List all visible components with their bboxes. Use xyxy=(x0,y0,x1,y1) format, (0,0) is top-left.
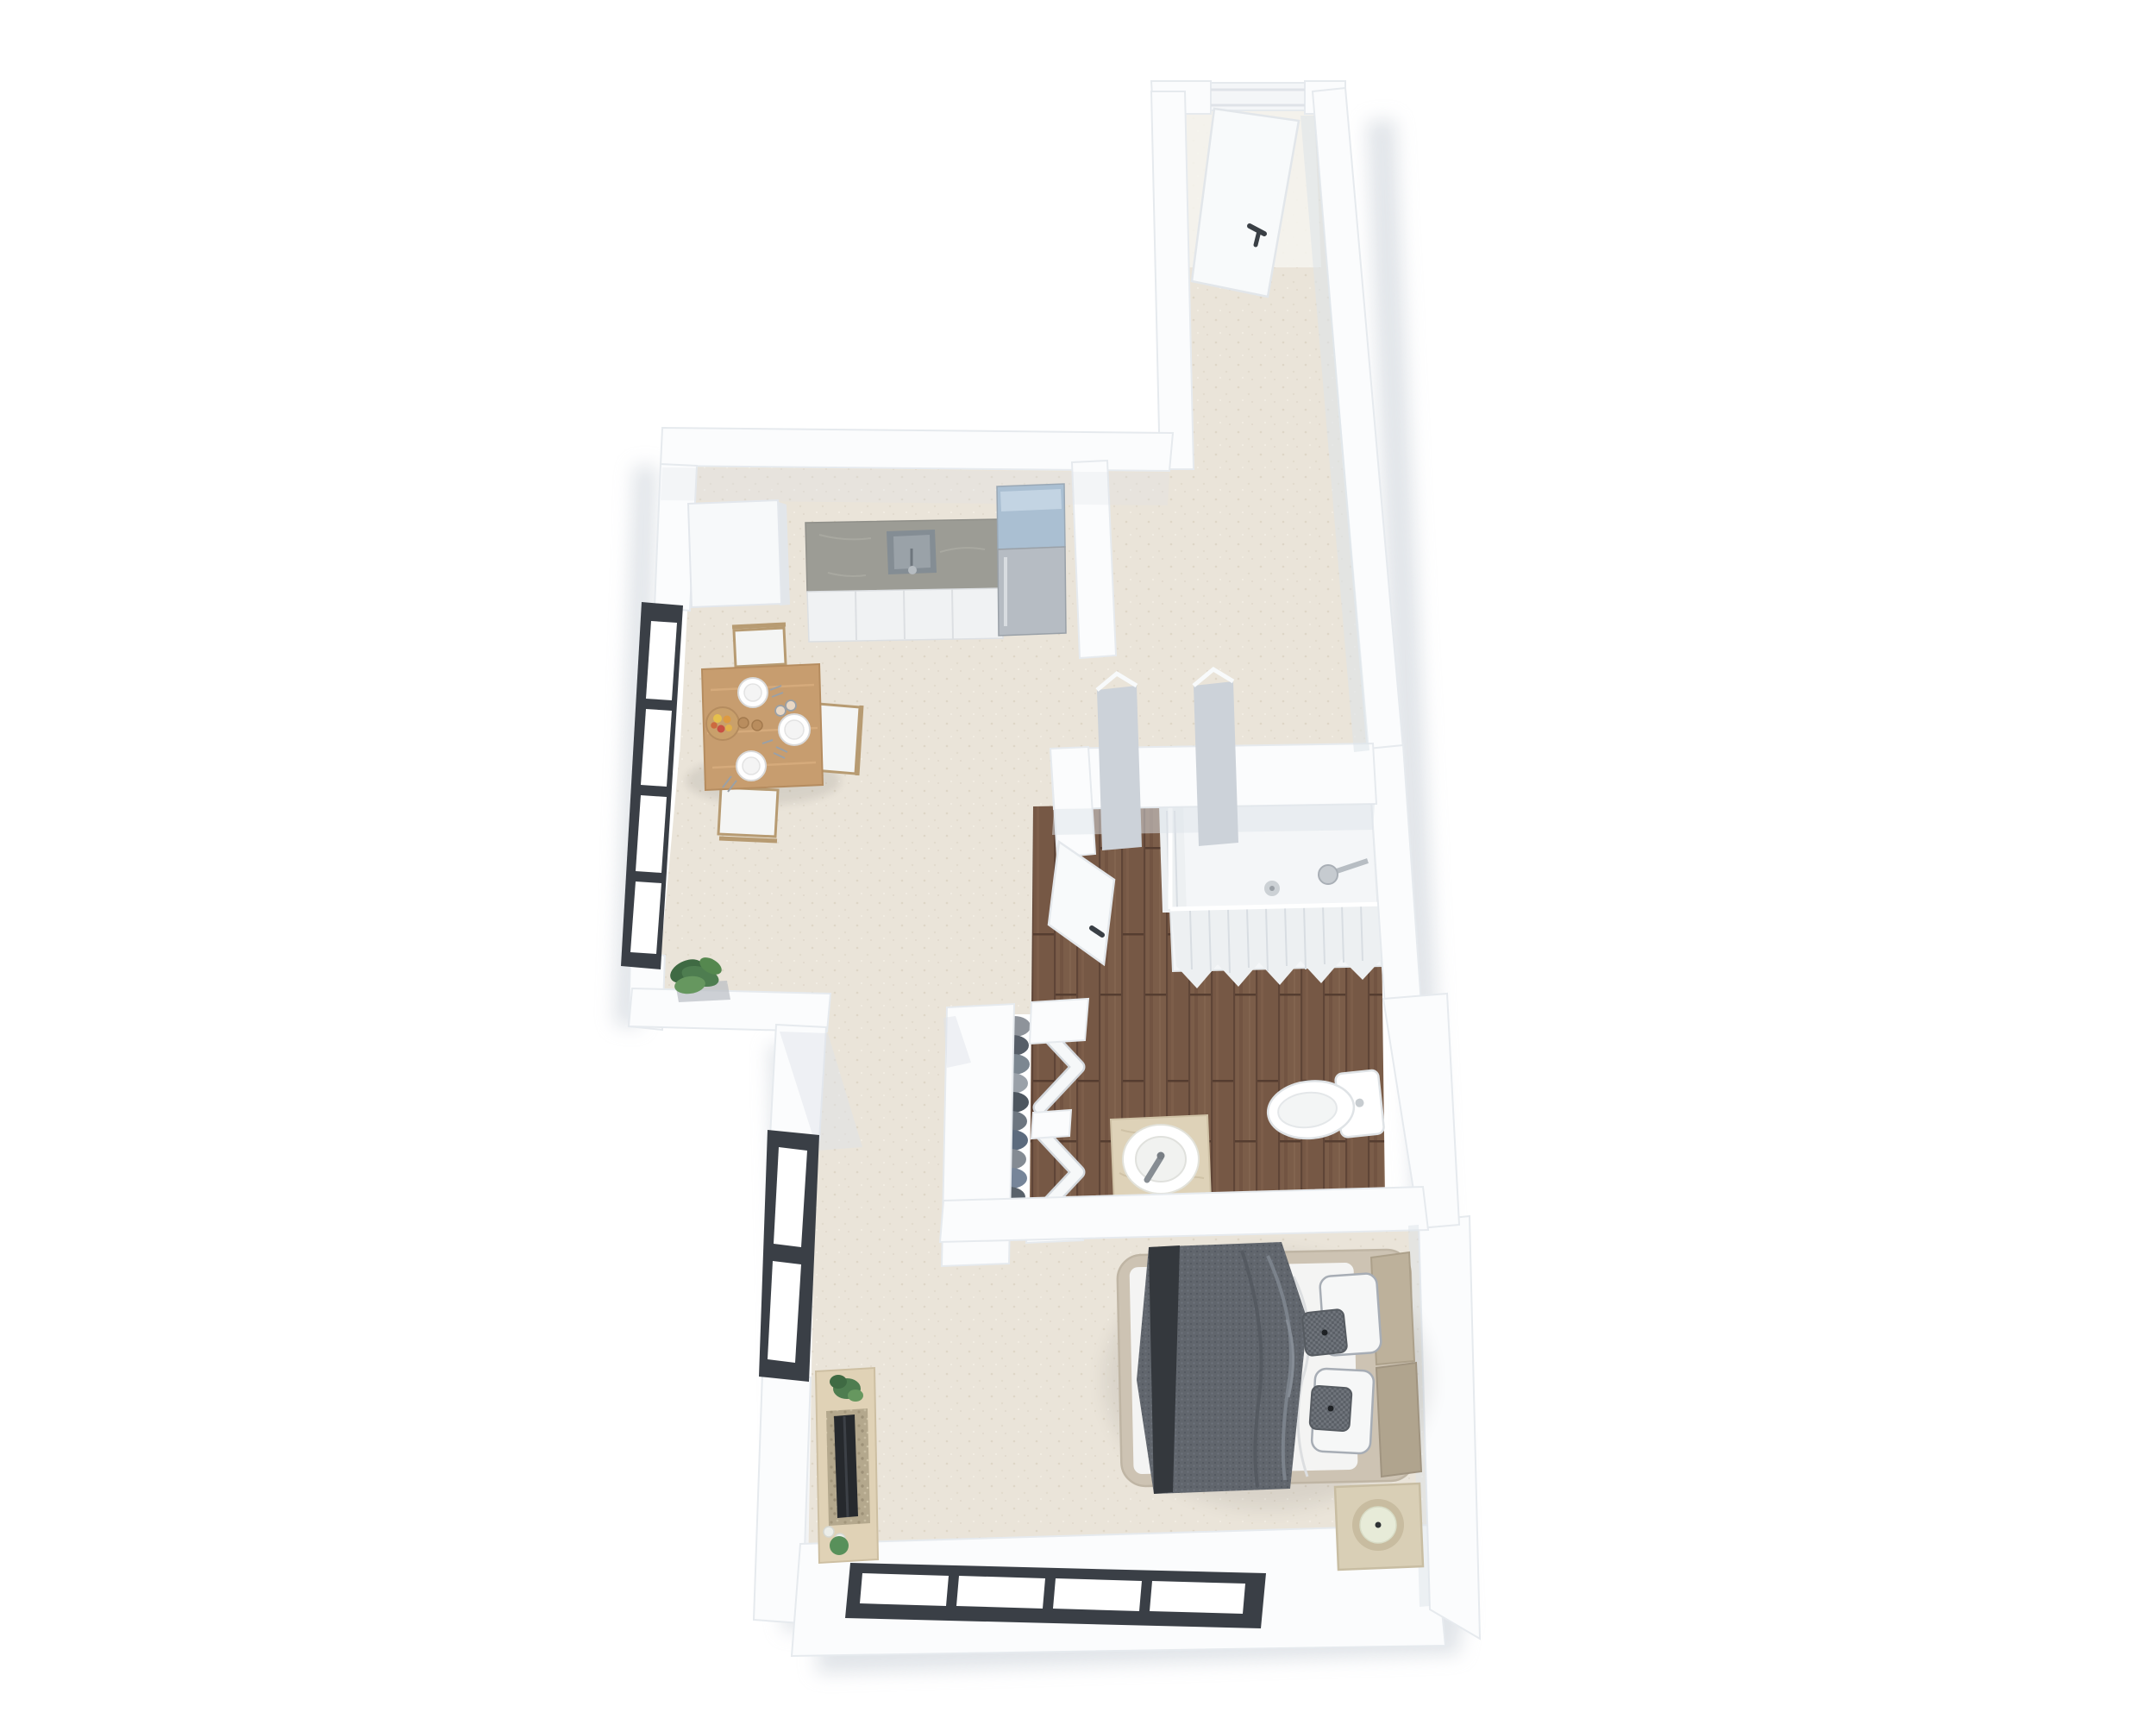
lamp-finial xyxy=(1376,1522,1382,1528)
leaning-panel xyxy=(1097,686,1142,850)
plate-inner xyxy=(743,757,760,775)
refrigerator-front xyxy=(998,547,1066,636)
sink-vanity xyxy=(1111,1115,1211,1202)
window-pane xyxy=(1053,1578,1142,1611)
console-plant-leaf xyxy=(848,1389,863,1402)
cushion-button xyxy=(1328,1406,1334,1412)
chair-bottom xyxy=(718,787,778,837)
plate-inner xyxy=(785,720,804,739)
plate-inner xyxy=(744,684,761,701)
fruit-board xyxy=(706,707,739,740)
fruit xyxy=(725,724,732,731)
wine-glass xyxy=(775,706,786,716)
tumbler xyxy=(752,720,762,731)
floorplan-render xyxy=(0,0,2156,1725)
shower-head xyxy=(1319,865,1338,884)
fruit xyxy=(718,725,725,733)
window-pane xyxy=(646,621,677,700)
leaning-panel xyxy=(1194,681,1238,846)
nightstand xyxy=(1335,1483,1423,1570)
pantry-cabinet xyxy=(688,500,781,607)
cabinet-seam xyxy=(856,591,856,640)
headboard-bolster xyxy=(1376,1363,1421,1477)
wall-bathroom-door-stub xyxy=(1050,747,1095,857)
fruit xyxy=(724,716,731,724)
cushion-button xyxy=(1322,1330,1328,1336)
window-pane xyxy=(860,1573,949,1606)
tv-console xyxy=(816,1368,878,1563)
wall-closet-stub-mid xyxy=(1031,1110,1071,1138)
wine-glass xyxy=(786,700,796,711)
fruit xyxy=(711,722,718,729)
face-kitchen-top xyxy=(661,467,1169,505)
sink-faucet xyxy=(908,566,917,574)
refrigerator-top-sheen xyxy=(1000,489,1062,511)
chair-top xyxy=(734,628,786,667)
window-bedroom-bottom xyxy=(845,1563,1266,1628)
window-pane xyxy=(956,1576,1045,1609)
window-pane xyxy=(630,881,661,954)
console-ball-plant xyxy=(830,1536,849,1555)
console-plant-leaf xyxy=(830,1375,847,1389)
window-pane xyxy=(641,709,672,787)
chair-back xyxy=(732,624,786,627)
wall-closet-stub-top xyxy=(1030,999,1088,1044)
cabinet-seam xyxy=(904,590,905,639)
faucet-base xyxy=(1157,1152,1165,1160)
tumbler xyxy=(738,718,749,728)
window-bedroom-left xyxy=(759,1130,819,1382)
double-bed xyxy=(1104,1242,1432,1509)
fruit xyxy=(713,714,722,723)
cabinet-seam xyxy=(952,589,953,639)
chair-back xyxy=(719,838,777,841)
shower-drain-hole xyxy=(1269,886,1275,891)
window-pane xyxy=(1150,1581,1245,1614)
window-pane xyxy=(636,795,667,873)
decor-pebble xyxy=(824,1527,834,1537)
floorplan-svg xyxy=(0,0,2156,1725)
